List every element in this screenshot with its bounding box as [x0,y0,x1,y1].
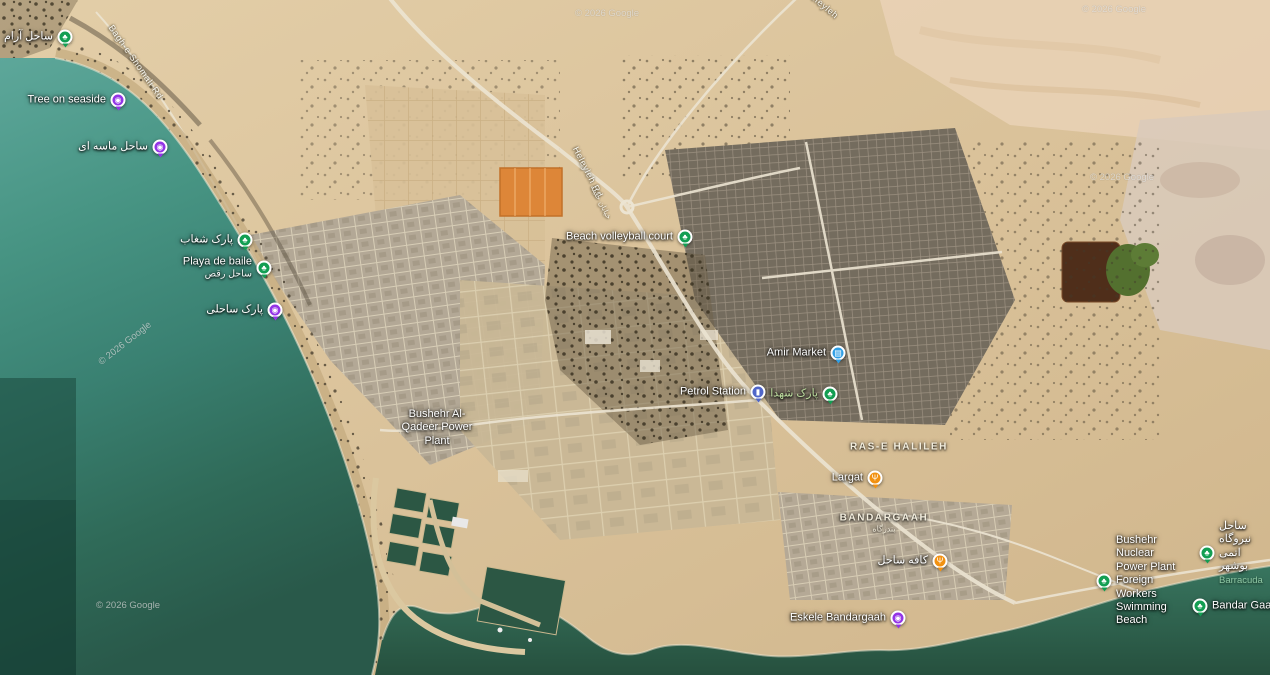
playa-de-baile-sublabel: ساحل رقص [183,269,252,280]
park-icon: ♣ [240,235,251,246]
petrol-station-pin[interactable]: ▮ [751,385,766,400]
google-attribution-watermark-2: © 2026 Google [1082,4,1146,15]
power-plant-label-text: Bushehr Al-Qadeer Power Plant [397,408,477,448]
eskele-bandargaah-label[interactable]: Eskele Bandargaah [790,612,886,625]
beach-volleyball-court-label-text: Beach volleyball court [566,231,673,244]
playa-de-baile-label-text: Playa de baile [183,256,252,269]
shohada-park-label[interactable]: پارک شهدا [770,388,818,401]
park-icon: ♣ [680,232,691,243]
camera-icon: ◉ [113,95,124,106]
ras-e-halileh-area-text: RAS-E HALILEH [850,442,948,453]
beach-cafe-pin[interactable]: Ψ [933,554,948,569]
amir-market-label-text: Amir Market [767,347,826,360]
camera-icon: ◉ [155,142,166,153]
eskele-bandargaah-pin[interactable]: ◉ [891,611,906,626]
nuclear-workers-beach-label[interactable]: Bushehr Nuclear Power Plant Foreign Work… [1116,534,1180,628]
playa-de-baile-label[interactable]: Playa de baileساحل رقص [183,256,252,281]
fuel-icon: ▮ [753,387,764,398]
coastal-park-pin[interactable]: ◉ [268,303,283,318]
park-icon: ♣ [825,389,836,400]
tree-on-seaside-pin[interactable]: ◉ [111,93,126,108]
park-icon: ♣ [60,32,71,43]
coastal-park-label[interactable]: پارک ساحلی [206,304,263,317]
google-maps-satellite-view[interactable]: { "map": { "attribution": "© 2026 Google… [0,0,1270,675]
playa-de-baile-pin[interactable]: ♣ [257,261,272,276]
atomic-plant-beach-label[interactable]: ساحل نیروگاه اتمی بوشهرBarracuda [1219,520,1265,586]
camera-icon: ◉ [893,613,904,624]
petrol-station-label-text: Petrol Station [680,386,746,399]
beach-cafe-label-text: کافه ساحل [878,555,929,568]
calm-beach-pin[interactable]: ♣ [58,30,73,45]
bagh-e-shomali-rd-road-label: Bagh-e Shomali Rd [107,23,166,101]
cart-icon: ▤ [833,348,844,359]
shoghab-park-pin[interactable]: ♣ [238,233,253,248]
bandargaah-district-area-subtext: بندرگاه [840,525,929,534]
restaurant-icon: Ψ [870,473,881,484]
park-icon: ♣ [1202,548,1213,559]
shohada-park-label-text: پارک شهدا [770,388,818,401]
sandy-beach-label-text: ساحل ماسه ای [78,141,148,154]
nuclear-workers-beach-label-text: Bushehr Nuclear Power Plant Foreign Work… [1116,534,1180,628]
calm-beach-label-text: ساحل آرام [4,31,53,44]
bandar-gaah-pin[interactable]: ♣ [1193,599,1208,614]
petrol-station-label[interactable]: Petrol Station [680,386,746,399]
calm-beach-label[interactable]: ساحل آرام [4,31,53,44]
heleyleh-rd-top-road-label: Heleyleh [804,0,841,21]
shohada-park-pin[interactable]: ♣ [823,387,838,402]
atomic-plant-beach-pin[interactable]: ♣ [1200,546,1215,561]
coastal-park-label-text: پارک ساحلی [206,304,263,317]
largat-restaurant-label[interactable]: Largat [832,472,863,485]
restaurant-icon: Ψ [935,556,946,567]
park-icon: ♣ [1099,576,1110,587]
atomic-plant-beach-label-text: ساحل نیروگاه اتمی بوشهر [1219,520,1265,574]
tree-on-seaside-label[interactable]: Tree on seaside [28,94,106,107]
bandargaah-district-area-text: BANDARGAAH [840,513,929,524]
sandy-beach-label[interactable]: ساحل ماسه ای [78,141,148,154]
tree-on-seaside-label-text: Tree on seaside [28,94,106,107]
largat-restaurant-label-text: Largat [832,472,863,485]
google-attribution-watermark-3: © 2026 Google [1090,172,1154,183]
largat-restaurant-pin[interactable]: Ψ [868,471,883,486]
bandar-gaah-label[interactable]: Bandar Gaah [1212,600,1270,613]
beach-volleyball-court-label[interactable]: Beach volleyball court [566,231,673,244]
sandy-beach-pin[interactable]: ◉ [153,140,168,155]
shoghab-park-label[interactable]: پارک شغاب [180,234,233,247]
camera-icon: ◉ [270,305,281,316]
power-plant-label[interactable]: Bushehr Al-Qadeer Power Plant [397,408,477,448]
beach-volleyball-court-pin[interactable]: ♣ [678,230,693,245]
park-icon: ♣ [259,263,270,274]
google-attribution-watermark-1: © 2026 Google [575,8,639,19]
park-icon: ♣ [1195,601,1206,612]
atomic-plant-beach-sublabel: Barracuda [1219,575,1265,587]
amir-market-pin[interactable]: ▤ [831,346,846,361]
beach-cafe-label[interactable]: کافه ساحل [878,555,929,568]
ras-e-halileh-area-label: RAS-E HALILEH [850,442,948,453]
google-attribution-watermark-5: © 2026 Google [96,600,160,611]
eskele-bandargaah-label-text: Eskele Bandargaah [790,612,886,625]
map-label-layer: ♣ساحل آرام◉Tree on seaside◉ساحل ماسه ای♣… [0,0,1270,675]
bandar-gaah-label-text: Bandar Gaah [1212,600,1270,613]
nuclear-workers-beach-pin[interactable]: ♣ [1097,574,1112,589]
bandargaah-district-area-label: BANDARGAAHبندرگاه [840,513,929,534]
google-attribution-watermark-4: © 2026 Google [96,319,153,367]
shoghab-park-label-text: پارک شغاب [180,234,233,247]
amir-market-label[interactable]: Amir Market [767,347,826,360]
